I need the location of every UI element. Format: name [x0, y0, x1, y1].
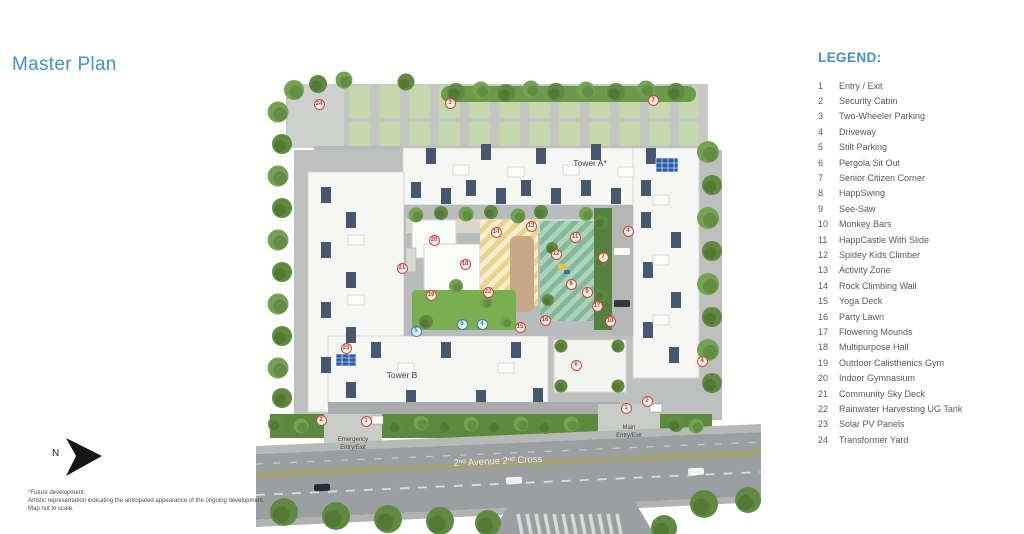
plan-marker-6: 6	[571, 360, 582, 371]
plan-marker-17: 17	[592, 301, 603, 312]
legend-item: 2 Security Cabin	[818, 93, 1020, 108]
legend-item: 12 Spidey Kids Climber	[818, 247, 1020, 262]
legend-item-label: Solar PV Panels	[839, 419, 905, 429]
legend-item: 24 Transformer Yard	[818, 432, 1020, 447]
legend-item-number: 17	[818, 327, 839, 337]
disclaimer: *Future development. Artistic representa…	[28, 489, 265, 513]
legend-item: 3 Two-Wheeler Parking	[818, 109, 1020, 124]
legend-item-number: 5	[818, 142, 839, 152]
plan-marker-15: 15	[515, 322, 526, 333]
legend-item-number: 1	[818, 81, 839, 91]
legend-item: 15 Yoga Deck	[818, 293, 1020, 308]
legend-item: 6 Pergola Sit Out	[818, 155, 1020, 170]
car	[506, 477, 522, 485]
emergency-gate-label-line2: Entry/Exit	[340, 445, 366, 451]
car	[314, 484, 330, 492]
legend-item-label: Stilt Parking	[839, 142, 887, 152]
north-compass: N	[38, 428, 118, 484]
legend-item: 4 Driveway	[818, 124, 1020, 139]
legend-item-number: 11	[818, 235, 839, 245]
legend-item-label: Party Lawn	[839, 312, 884, 322]
legend-item-label: Senior Citizen Corner	[839, 173, 925, 183]
plan-marker-1: 1	[621, 403, 632, 414]
legend-item: 19 Outdoor Calisthenics Gym	[818, 355, 1020, 370]
disclaimer-line1: *Future development.	[28, 489, 265, 497]
legend-item: 10 Monkey Bars	[818, 217, 1020, 232]
legend-item-label: Rock Climbing Wall	[839, 281, 917, 291]
legend-item-label: Multipurpose Hall	[839, 342, 909, 352]
legend-item: 16 Party Lawn	[818, 309, 1020, 324]
legend-item: 23 Solar PV Panels	[818, 417, 1020, 432]
legend-item-number: 16	[818, 312, 839, 322]
legend-item-number: 23	[818, 419, 839, 429]
legend-item-number: 6	[818, 158, 839, 168]
plan-marker-18: 18	[460, 259, 471, 270]
legend-item-label: Indoor Gymnasium	[839, 373, 915, 383]
plan-marker-12: 12	[551, 249, 562, 260]
legend-item-label: HappSwing	[839, 188, 885, 198]
car	[688, 468, 704, 476]
plan-marker-4: 4	[623, 226, 634, 237]
plan-marker-5: 5	[411, 326, 422, 337]
legend-item-label: Flowering Mounds	[839, 327, 913, 337]
legend-item: 11 HappCastle With Slide	[818, 232, 1020, 247]
security-cabin	[372, 416, 383, 424]
legend-item-label: Outdoor Calisthenics Gym	[839, 358, 944, 368]
legend-item: 1 Entry / Exit	[818, 78, 1020, 93]
legend-item-label: Activity Zone	[839, 265, 891, 275]
legend-item-number: 9	[818, 204, 839, 214]
site-plan-illustration: Tower A* Tower B 2ⁿᵈ Avenue 2ⁿᵈ Cross Em…	[256, 0, 761, 534]
north-arrow-icon	[64, 434, 104, 480]
plan-marker-3: 3	[648, 95, 659, 106]
plan-marker-24: 24	[314, 99, 325, 110]
legend-item-number: 18	[818, 342, 839, 352]
legend-item-number: 8	[818, 188, 839, 198]
legend-item: 21 Community Sky Deck	[818, 386, 1020, 401]
plan-marker-21: 21	[397, 263, 408, 274]
legend-item-number: 10	[818, 219, 839, 229]
legend-item-number: 15	[818, 296, 839, 306]
plan-marker-10: 10	[605, 316, 616, 327]
legend-heading: LEGEND:	[818, 50, 1020, 65]
legend-item-label: Pergola Sit Out	[839, 158, 900, 168]
plan-marker-2: 2	[642, 396, 653, 407]
legend-item-label: Transformer Yard	[839, 435, 908, 445]
legend-item-number: 7	[818, 173, 839, 183]
master-plan-page: Master Plan	[0, 0, 1024, 534]
plan-marker-3: 3	[445, 98, 456, 109]
plan-marker-9: 9	[582, 287, 593, 298]
north-label: N	[52, 448, 59, 459]
disclaimer-line2: Artistic representation indicating the a…	[28, 497, 265, 505]
legend-list: 1 Entry / Exit 2 Security Cabin 3 Two-Wh…	[818, 78, 1020, 447]
legend-item-label: Driveway	[839, 127, 876, 137]
legend-item: 13 Activity Zone	[818, 263, 1020, 278]
plan-marker-23: 23	[341, 343, 352, 354]
legend-item-label: Two-Wheeler Parking	[839, 111, 925, 121]
legend-item: 9 See-Saw	[818, 201, 1020, 216]
legend-item-label: Entry / Exit	[839, 81, 883, 91]
courtyard	[404, 205, 633, 336]
plan-marker-13: 13	[526, 221, 537, 232]
emergency-gate-label-line1: Emergency	[338, 437, 368, 443]
plan-marker-8: 8	[566, 279, 577, 290]
plan-marker-5: 5	[457, 319, 468, 330]
plan-marker-19: 19	[426, 290, 437, 301]
site-plan: Tower A* Tower B 2ⁿᵈ Avenue 2ⁿᵈ Cross Em…	[256, 0, 761, 534]
legend-item: 18 Multipurpose Hall	[818, 340, 1020, 355]
legend-item-label: See-Saw	[839, 204, 876, 214]
legend-item-label: Security Cabin	[839, 96, 898, 106]
legend-item-label: Monkey Bars	[839, 219, 892, 229]
legend-item-number: 19	[818, 358, 839, 368]
legend-item-number: 14	[818, 281, 839, 291]
legend-item-number: 24	[818, 435, 839, 445]
legend-item: 20 Indoor Gymnasium	[818, 370, 1020, 385]
pergola-deck	[554, 340, 626, 393]
legend-item-label: Community Sky Deck	[839, 389, 925, 399]
plan-marker-4: 4	[697, 356, 708, 367]
legend-item-label: Spidey Kids Climber	[839, 250, 920, 260]
legend-item-label: HappCastle With Slide	[839, 235, 929, 245]
legend-item: 22 Rainwater Harvesting UG Tank	[818, 401, 1020, 416]
plan-marker-20: 20	[429, 235, 440, 246]
tower-a-label: Tower A*	[573, 158, 607, 168]
security-cabin-main	[650, 404, 662, 412]
legend-panel: LEGEND: 1 Entry / Exit 2 Security Cabin …	[818, 50, 1020, 447]
plan-marker-4: 4	[477, 319, 488, 330]
plan-marker-2: 2	[316, 415, 327, 426]
disclaimer-line3: Map not to scale.	[28, 505, 265, 513]
legend-item: 7 Senior Citizen Corner	[818, 170, 1020, 185]
page-title: Master Plan	[12, 54, 117, 76]
legend-item-label: Rainwater Harvesting UG Tank	[839, 404, 962, 414]
legend-item-number: 4	[818, 127, 839, 137]
plan-marker-1: 1	[361, 416, 372, 427]
plan-marker-14: 14	[491, 227, 502, 238]
legend-item-number: 20	[818, 373, 839, 383]
legend-item: 8 HappSwing	[818, 186, 1020, 201]
legend-item-number: 12	[818, 250, 839, 260]
legend-item-number: 22	[818, 404, 839, 414]
legend-item-number: 2	[818, 96, 839, 106]
plan-marker-7: 7	[598, 252, 609, 263]
legend-item-number: 13	[818, 265, 839, 275]
main-gate-label-line1: Main	[622, 425, 635, 431]
main-gate-label-line2: Entry/Exit	[616, 433, 642, 439]
legend-item-number: 3	[818, 111, 839, 121]
plan-marker-11: 11	[570, 232, 581, 243]
plan-marker-22: 22	[483, 287, 494, 298]
plan-marker-16: 16	[540, 315, 551, 326]
legend-item-label: Yoga Deck	[839, 296, 882, 306]
legend-item: 14 Rock Climbing Wall	[818, 278, 1020, 293]
legend-item: 17 Flowering Mounds	[818, 324, 1020, 339]
legend-item-number: 21	[818, 389, 839, 399]
legend-item: 5 Stilt Parking	[818, 140, 1020, 155]
tower-b-label: Tower B	[387, 370, 418, 380]
